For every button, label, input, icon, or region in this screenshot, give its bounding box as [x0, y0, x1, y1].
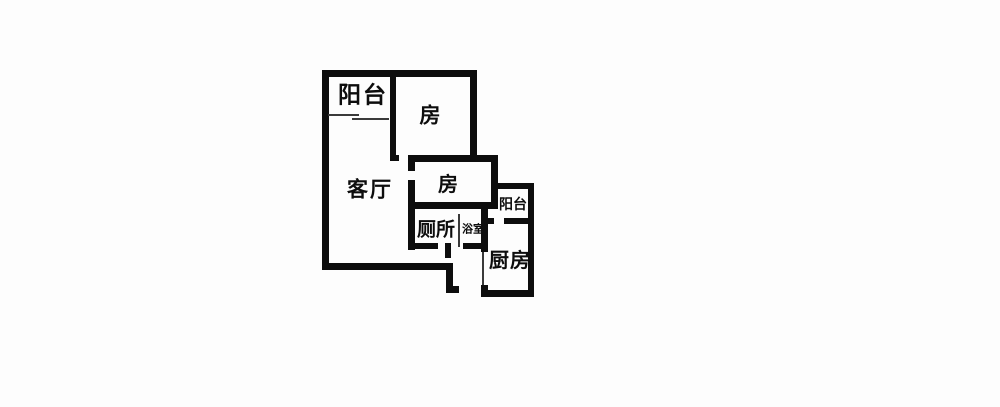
label-bathroom: 浴室: [462, 224, 484, 235]
wall-balcony-top-divider-foot: [390, 155, 399, 161]
wall-balcony-kitchen-divider-stub: [483, 218, 494, 224]
wall-bedroom-middle-left-stub: [408, 162, 415, 171]
wall-balcony-top-divider: [390, 70, 396, 161]
wall-entry-step-foot: [446, 286, 459, 293]
wall-bedroom-middle-left: [408, 180, 415, 250]
label-balcony-right: 阳台: [499, 198, 527, 212]
wall-bedroom-middle-right: [491, 155, 498, 209]
kitchen-door-leaf-line: [482, 252, 484, 285]
wall-balcony-kitchen-divider-right: [504, 218, 534, 224]
label-living-room: 客厅: [347, 180, 393, 201]
balcony-sliding-door-line-left: [328, 114, 359, 116]
wall-left: [322, 70, 329, 270]
balcony-sliding-door-line-right: [352, 118, 389, 120]
wall-bedroom-top-right: [470, 70, 477, 162]
label-bedroom-top: 房: [420, 106, 443, 127]
floor-plan: 阳台 房 客厅 房 厕所 浴室 阳台 厨房: [0, 0, 1000, 407]
label-kitchen: 厨房: [489, 250, 531, 270]
toilet-bathroom-partition-line: [458, 214, 460, 247]
wall-kitchen-bottom: [481, 290, 534, 297]
wall-toilet-bottom-left: [412, 243, 438, 249]
label-toilet: 厕所: [417, 221, 455, 240]
wall-bottom-left: [322, 263, 453, 270]
label-balcony-top: 阳台: [338, 85, 388, 108]
wall-toilet-bottom-right: [463, 243, 488, 249]
label-bedroom-middle: 房: [438, 174, 460, 194]
wall-top: [322, 70, 477, 77]
wall-bedroom-middle-top: [408, 155, 498, 162]
wall-right: [528, 183, 534, 297]
toilet-door-leaf: [445, 243, 451, 258]
